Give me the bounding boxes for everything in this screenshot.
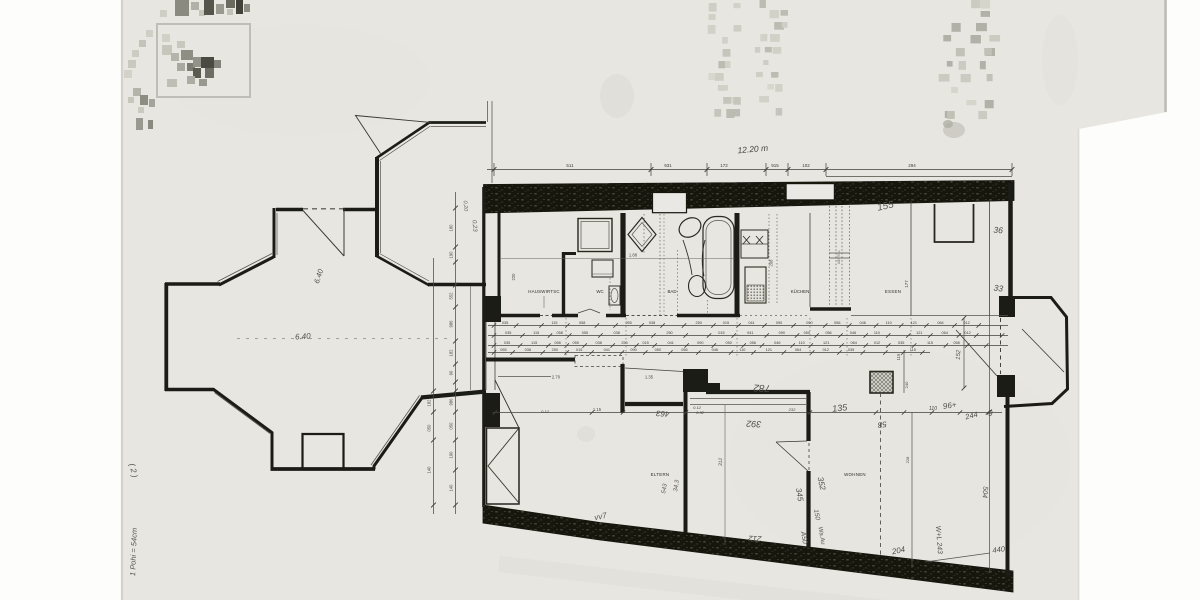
svg-text:931: 931 xyxy=(664,163,672,168)
svg-text:064: 064 xyxy=(795,348,801,352)
svg-text:041: 041 xyxy=(668,341,674,345)
svg-text:90: 90 xyxy=(449,370,454,375)
svg-text:KÜCHEN: KÜCHEN xyxy=(791,289,810,294)
svg-text:552: 552 xyxy=(449,292,454,300)
svg-text:012: 012 xyxy=(964,331,970,335)
svg-text:208: 208 xyxy=(769,259,774,267)
svg-text:HAUSWIRTSC: HAUSWIRTSC xyxy=(528,289,559,294)
svg-text:115: 115 xyxy=(533,331,539,335)
svg-text:182: 182 xyxy=(427,399,432,407)
svg-text:1.88: 1.88 xyxy=(629,253,638,258)
svg-text:046: 046 xyxy=(712,348,718,352)
svg-text:511: 511 xyxy=(566,163,574,168)
svg-text:96+: 96+ xyxy=(942,400,957,411)
svg-text:1.15: 1.15 xyxy=(593,407,602,412)
svg-text:090: 090 xyxy=(779,331,785,335)
svg-text:015: 015 xyxy=(718,331,724,335)
svg-text:294: 294 xyxy=(908,163,916,168)
svg-text:-9: -9 xyxy=(985,409,993,418)
svg-text:064: 064 xyxy=(851,341,857,345)
svg-text:915: 915 xyxy=(771,163,779,168)
svg-text:240: 240 xyxy=(904,381,909,388)
svg-text:090: 090 xyxy=(630,348,636,352)
svg-text:050: 050 xyxy=(655,348,661,352)
svg-text:056: 056 xyxy=(825,331,831,335)
svg-text:110: 110 xyxy=(874,331,880,335)
svg-text:046: 046 xyxy=(774,341,780,345)
svg-text:110: 110 xyxy=(886,321,892,325)
svg-text:121: 121 xyxy=(766,348,772,352)
svg-text:035: 035 xyxy=(502,321,508,325)
svg-text:177: 177 xyxy=(904,280,909,288)
svg-text:250: 250 xyxy=(666,331,672,335)
svg-text:050: 050 xyxy=(726,341,732,345)
svg-text:115: 115 xyxy=(531,341,537,345)
svg-text:0.32: 0.32 xyxy=(696,410,705,415)
svg-text:115: 115 xyxy=(551,321,557,325)
svg-text:055: 055 xyxy=(500,348,506,352)
svg-text:312: 312 xyxy=(718,457,724,466)
svg-text:056: 056 xyxy=(681,348,687,352)
svg-text:056: 056 xyxy=(834,321,840,325)
svg-text:140: 140 xyxy=(449,484,454,492)
svg-text:050: 050 xyxy=(806,321,812,325)
svg-text:064: 064 xyxy=(942,331,948,335)
svg-text:058: 058 xyxy=(554,341,560,345)
svg-text:015: 015 xyxy=(576,348,582,352)
svg-text:121: 121 xyxy=(911,321,917,325)
svg-text:041: 041 xyxy=(747,331,753,335)
svg-text:090: 090 xyxy=(776,321,782,325)
svg-text:463: 463 xyxy=(655,409,669,419)
svg-text:190: 190 xyxy=(449,251,454,259)
svg-text:058: 058 xyxy=(579,321,585,325)
svg-text:140: 140 xyxy=(427,466,432,474)
svg-text:180: 180 xyxy=(449,224,454,232)
svg-text:135: 135 xyxy=(832,402,849,414)
svg-text:038: 038 xyxy=(525,348,531,352)
svg-text:064: 064 xyxy=(937,321,943,325)
svg-text:250: 250 xyxy=(552,348,558,352)
svg-text:182: 182 xyxy=(449,349,454,357)
svg-text:115: 115 xyxy=(896,353,901,360)
svg-text:33: 33 xyxy=(993,282,1004,293)
svg-text:035: 035 xyxy=(505,331,511,335)
svg-text:110: 110 xyxy=(739,348,745,352)
svg-text:102: 102 xyxy=(802,163,810,168)
svg-text:055: 055 xyxy=(582,331,588,335)
svg-text:250: 250 xyxy=(621,341,627,345)
svg-text:015: 015 xyxy=(723,321,729,325)
svg-text:121: 121 xyxy=(823,341,829,345)
svg-text:1 Pohi = 54cm: 1 Pohi = 54cm xyxy=(128,528,139,576)
svg-text:015: 015 xyxy=(642,341,648,345)
svg-text:WC: WC xyxy=(596,289,603,294)
svg-text:58: 58 xyxy=(877,419,888,429)
svg-text:190: 190 xyxy=(449,451,454,459)
svg-text:046: 046 xyxy=(850,331,856,335)
svg-text:046: 046 xyxy=(860,321,866,325)
svg-text:152: 152 xyxy=(956,349,963,360)
svg-text:232: 232 xyxy=(788,407,796,412)
svg-text:504: 504 xyxy=(980,486,988,498)
svg-text:392: 392 xyxy=(746,419,762,430)
svg-text:056: 056 xyxy=(750,341,756,345)
svg-text:986: 986 xyxy=(449,320,454,328)
svg-text:440: 440 xyxy=(992,544,1006,555)
svg-text:050: 050 xyxy=(804,331,810,335)
svg-text:041: 041 xyxy=(748,321,754,325)
svg-text:035: 035 xyxy=(848,348,854,352)
svg-text:250: 250 xyxy=(696,321,702,325)
svg-text:220: 220 xyxy=(511,273,516,281)
svg-text:012: 012 xyxy=(823,348,829,352)
svg-text:ESSEN: ESSEN xyxy=(885,289,901,294)
svg-text:36: 36 xyxy=(993,225,1003,236)
svg-text:172: 172 xyxy=(720,163,728,168)
svg-text:035: 035 xyxy=(898,341,904,345)
svg-text:ABSTELL: ABSTELL xyxy=(837,250,841,264)
svg-text:035: 035 xyxy=(504,341,510,345)
svg-text:6.40: 6.40 xyxy=(295,331,312,341)
svg-text:121: 121 xyxy=(916,331,922,335)
svg-text:0,20: 0,20 xyxy=(462,200,469,212)
svg-text:110: 110 xyxy=(929,406,937,412)
svg-text:115: 115 xyxy=(927,341,933,345)
svg-text:055: 055 xyxy=(625,321,631,325)
svg-text:0.12: 0.12 xyxy=(541,409,550,414)
svg-text:058: 058 xyxy=(953,341,959,345)
svg-text:058: 058 xyxy=(557,331,563,335)
svg-text:050: 050 xyxy=(449,422,454,430)
svg-text:090: 090 xyxy=(697,341,703,345)
svg-text:041: 041 xyxy=(604,348,610,352)
svg-text:228: 228 xyxy=(905,456,910,463)
svg-text:038: 038 xyxy=(649,321,655,325)
svg-text:110: 110 xyxy=(799,341,805,345)
svg-text:050: 050 xyxy=(427,424,432,432)
svg-text:BAD: BAD xyxy=(667,289,676,294)
svg-text:ELTERN: ELTERN xyxy=(651,472,670,477)
svg-text:012: 012 xyxy=(874,341,880,345)
svg-text:038: 038 xyxy=(596,341,602,345)
svg-text:2.70: 2.70 xyxy=(552,375,561,380)
svg-text:012: 012 xyxy=(963,321,969,325)
svg-text:WOHNEN: WOHNEN xyxy=(844,472,866,477)
svg-text:782: 782 xyxy=(753,382,771,394)
svg-text:212: 212 xyxy=(748,534,763,544)
svg-text:1.35: 1.35 xyxy=(645,375,654,380)
svg-text:055: 055 xyxy=(573,341,579,345)
svg-text:986: 986 xyxy=(449,398,454,406)
svg-text:038: 038 xyxy=(614,331,620,335)
svg-text:0,23: 0,23 xyxy=(471,220,478,233)
